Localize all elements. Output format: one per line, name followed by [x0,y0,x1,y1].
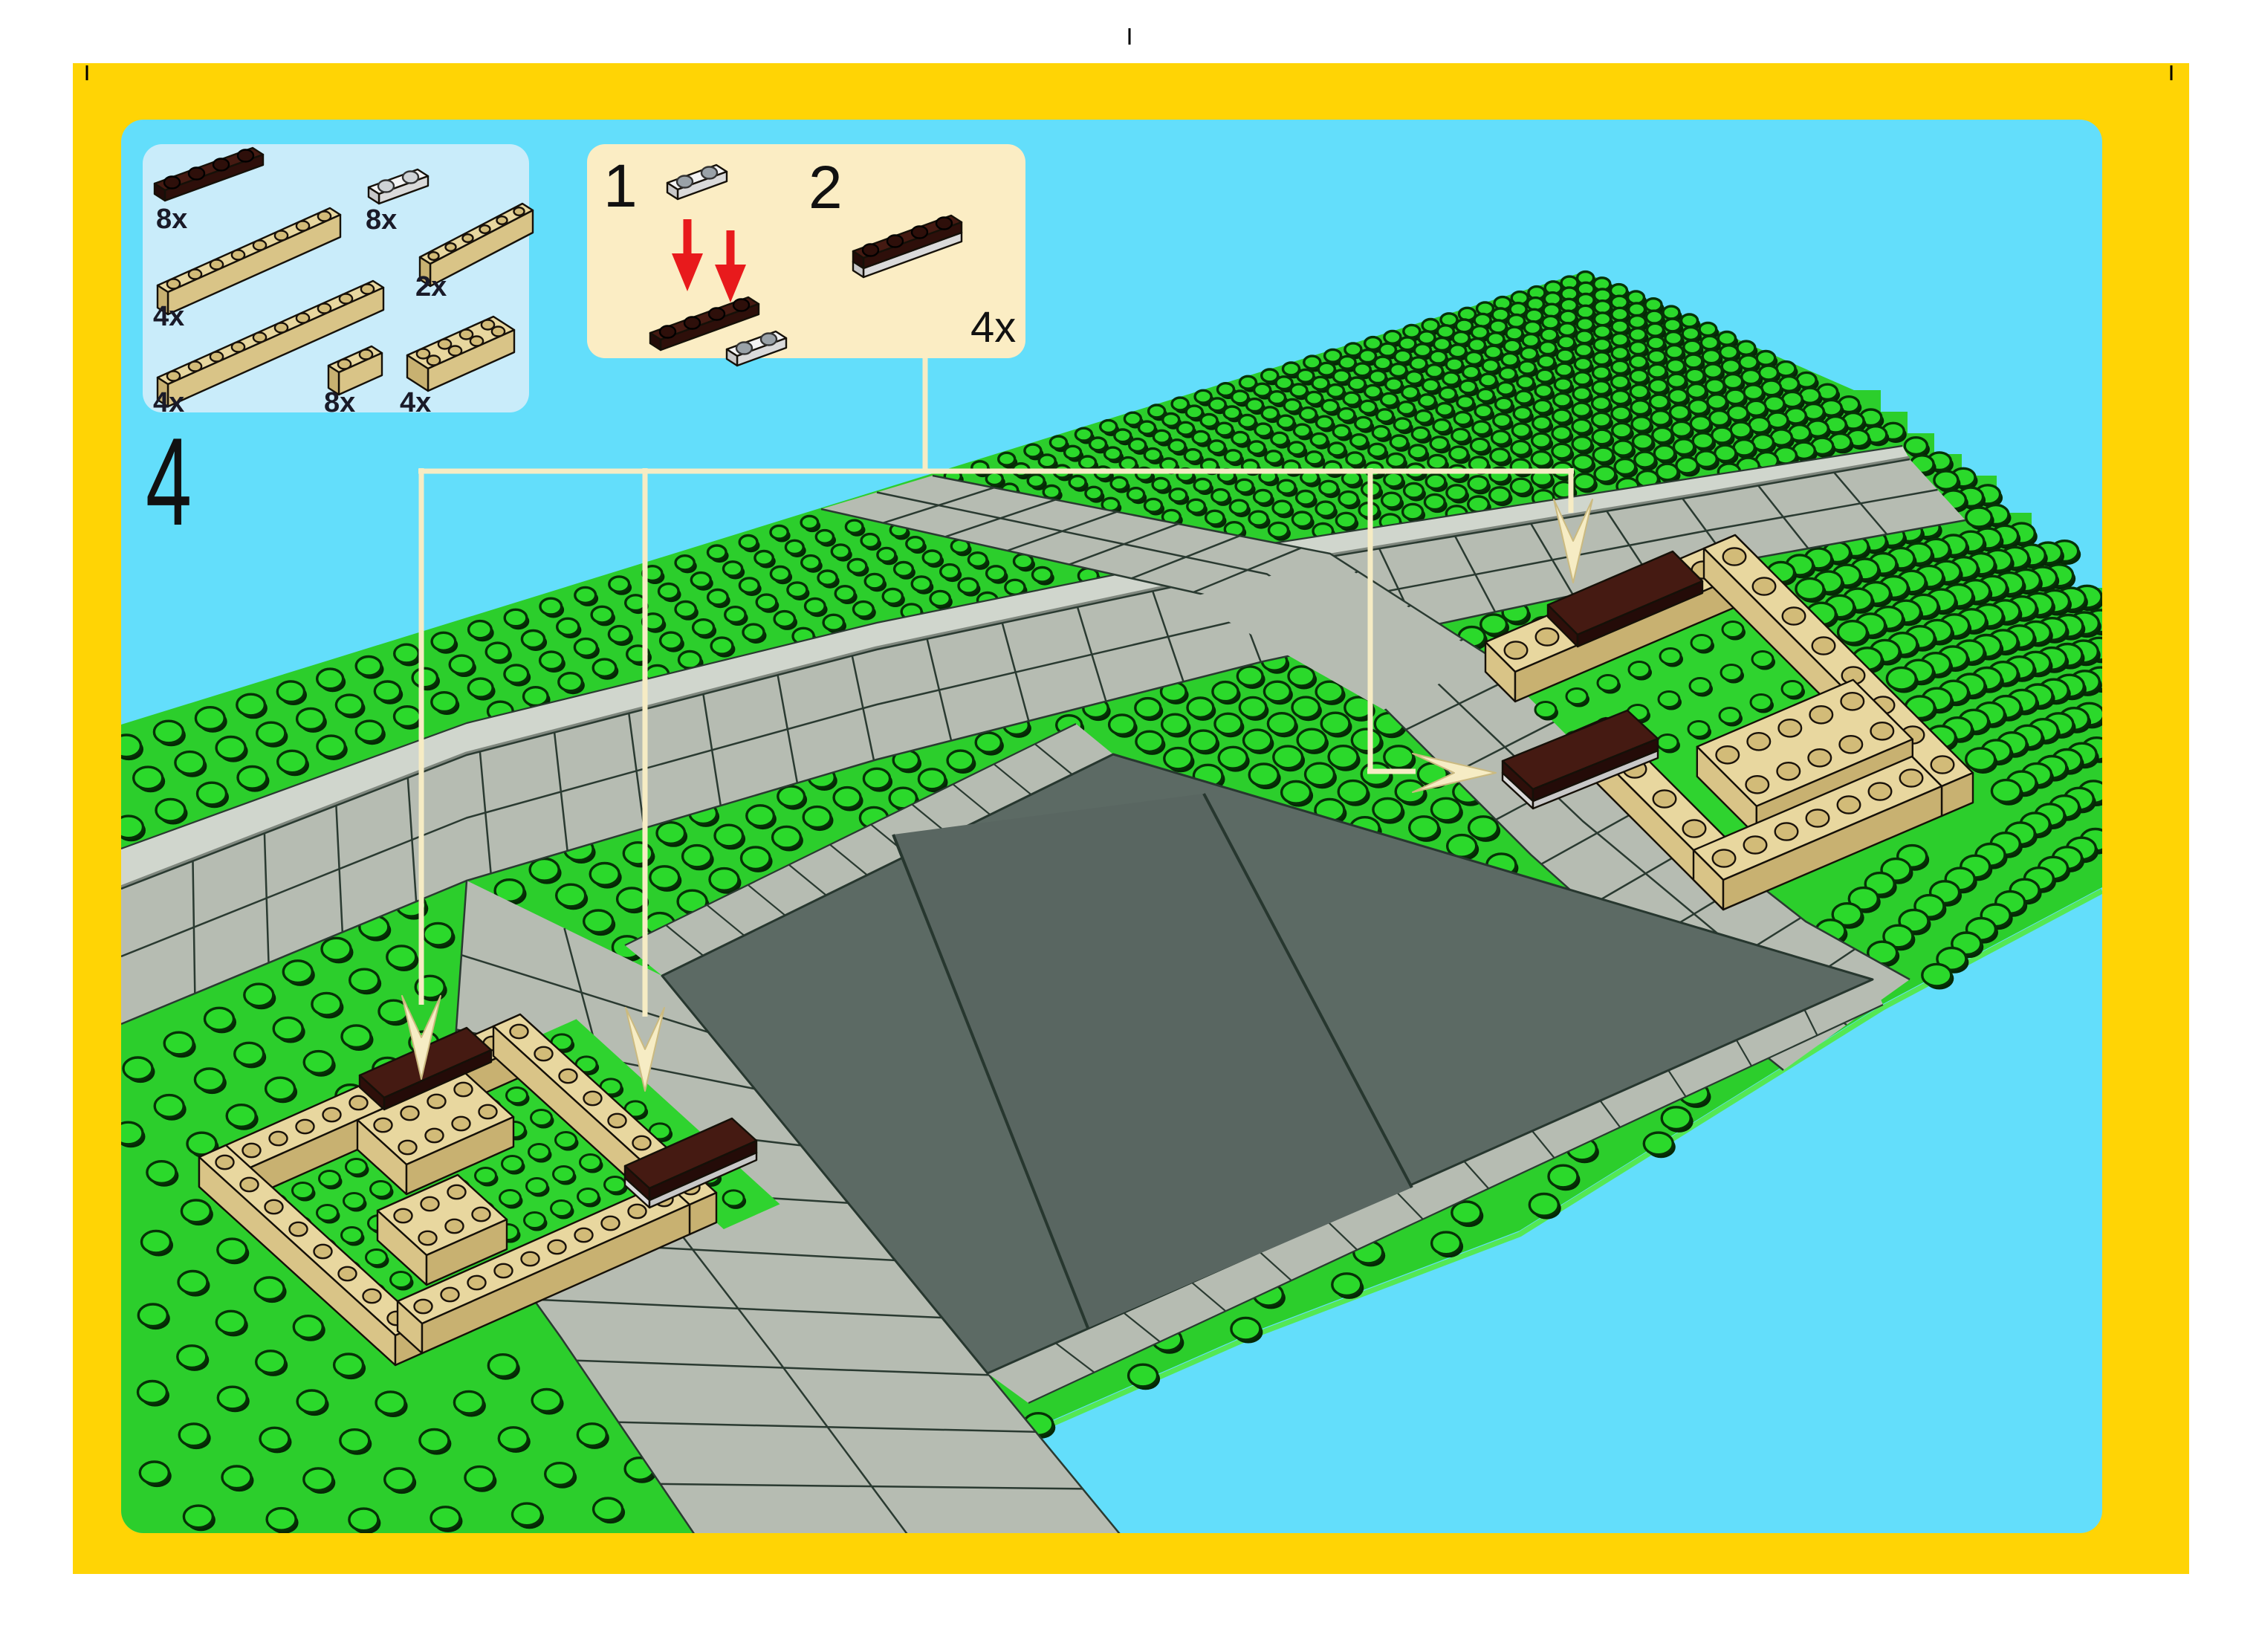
svg-text:4: 4 [146,412,192,551]
svg-text:4x: 4x [400,387,431,418]
svg-text:1: 1 [603,152,638,220]
svg-text:4x: 4x [153,301,184,332]
svg-text:8x: 8x [324,387,355,418]
svg-text:2x: 2x [415,271,447,302]
svg-text:8x: 8x [366,204,397,236]
svg-text:4x: 4x [970,303,1016,352]
svg-text:8x: 8x [156,204,187,235]
svg-text:2: 2 [808,154,843,221]
